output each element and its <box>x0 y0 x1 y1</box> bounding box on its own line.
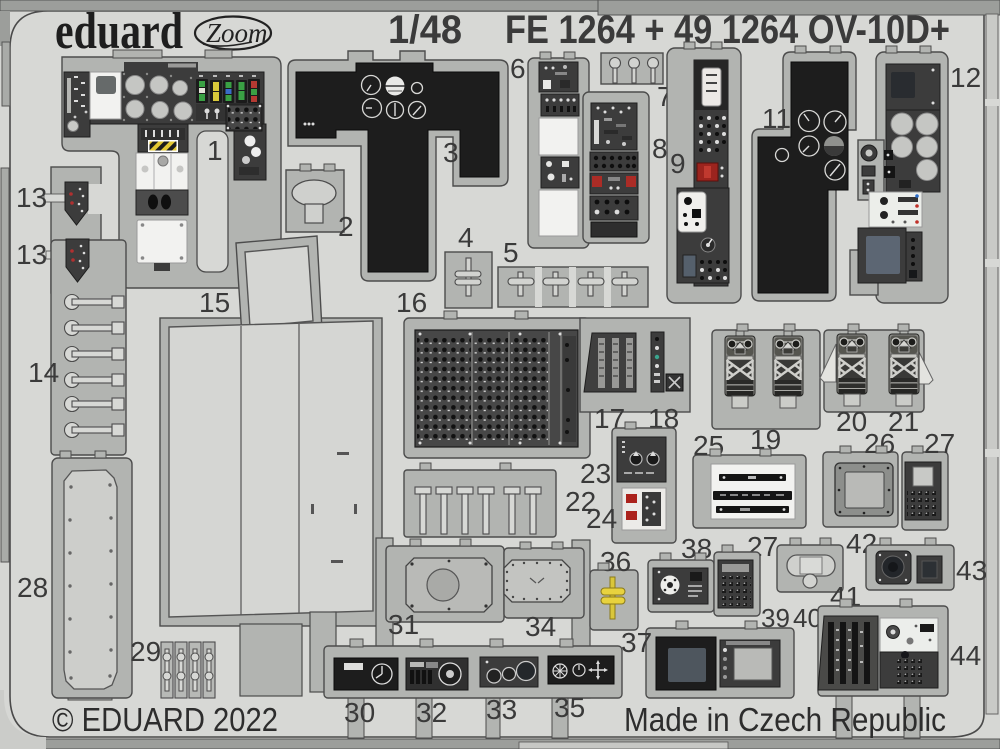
svg-text:6: 6 <box>510 53 526 84</box>
svg-text:14: 14 <box>28 357 59 388</box>
svg-text:29: 29 <box>130 636 161 667</box>
svg-text:28: 28 <box>17 572 48 603</box>
svg-text:1/48: 1/48 <box>388 8 462 52</box>
svg-text:16: 16 <box>396 287 427 318</box>
svg-text:44: 44 <box>950 640 981 671</box>
svg-text:13: 13 <box>16 182 47 213</box>
svg-text:32: 32 <box>416 697 447 728</box>
svg-text:2: 2 <box>338 211 354 242</box>
svg-text:1: 1 <box>207 135 223 166</box>
svg-text:Made in Czech Republic: Made in Czech Republic <box>624 701 946 738</box>
svg-text:24: 24 <box>586 503 617 534</box>
svg-text:36: 36 <box>600 546 631 577</box>
svg-text:4: 4 <box>458 222 474 253</box>
svg-text:13: 13 <box>16 239 47 270</box>
svg-text:12: 12 <box>950 62 981 93</box>
svg-text:11: 11 <box>762 103 791 134</box>
svg-text:9: 9 <box>670 148 686 179</box>
svg-text:37: 37 <box>621 627 652 658</box>
svg-text:15: 15 <box>199 287 230 318</box>
svg-text:31: 31 <box>388 609 419 640</box>
svg-text:34: 34 <box>525 611 556 642</box>
svg-text:20: 20 <box>836 406 867 437</box>
svg-text:26: 26 <box>864 428 895 459</box>
svg-text:23: 23 <box>580 458 611 489</box>
svg-text:© EDUARD 2022: © EDUARD 2022 <box>52 701 278 738</box>
svg-text:33: 33 <box>486 694 517 725</box>
svg-text:8: 8 <box>652 133 668 164</box>
svg-text:3: 3 <box>443 137 459 168</box>
svg-text:35: 35 <box>554 692 585 723</box>
svg-text:43: 43 <box>956 555 987 586</box>
svg-text:Zoom: Zoom <box>206 18 268 48</box>
svg-text:30: 30 <box>344 697 375 728</box>
svg-text:FE 1264 + 49 1264 OV-10D+: FE 1264 + 49 1264 OV-10D+ <box>505 8 950 52</box>
svg-text:27: 27 <box>924 428 955 459</box>
svg-text:5: 5 <box>503 237 519 268</box>
